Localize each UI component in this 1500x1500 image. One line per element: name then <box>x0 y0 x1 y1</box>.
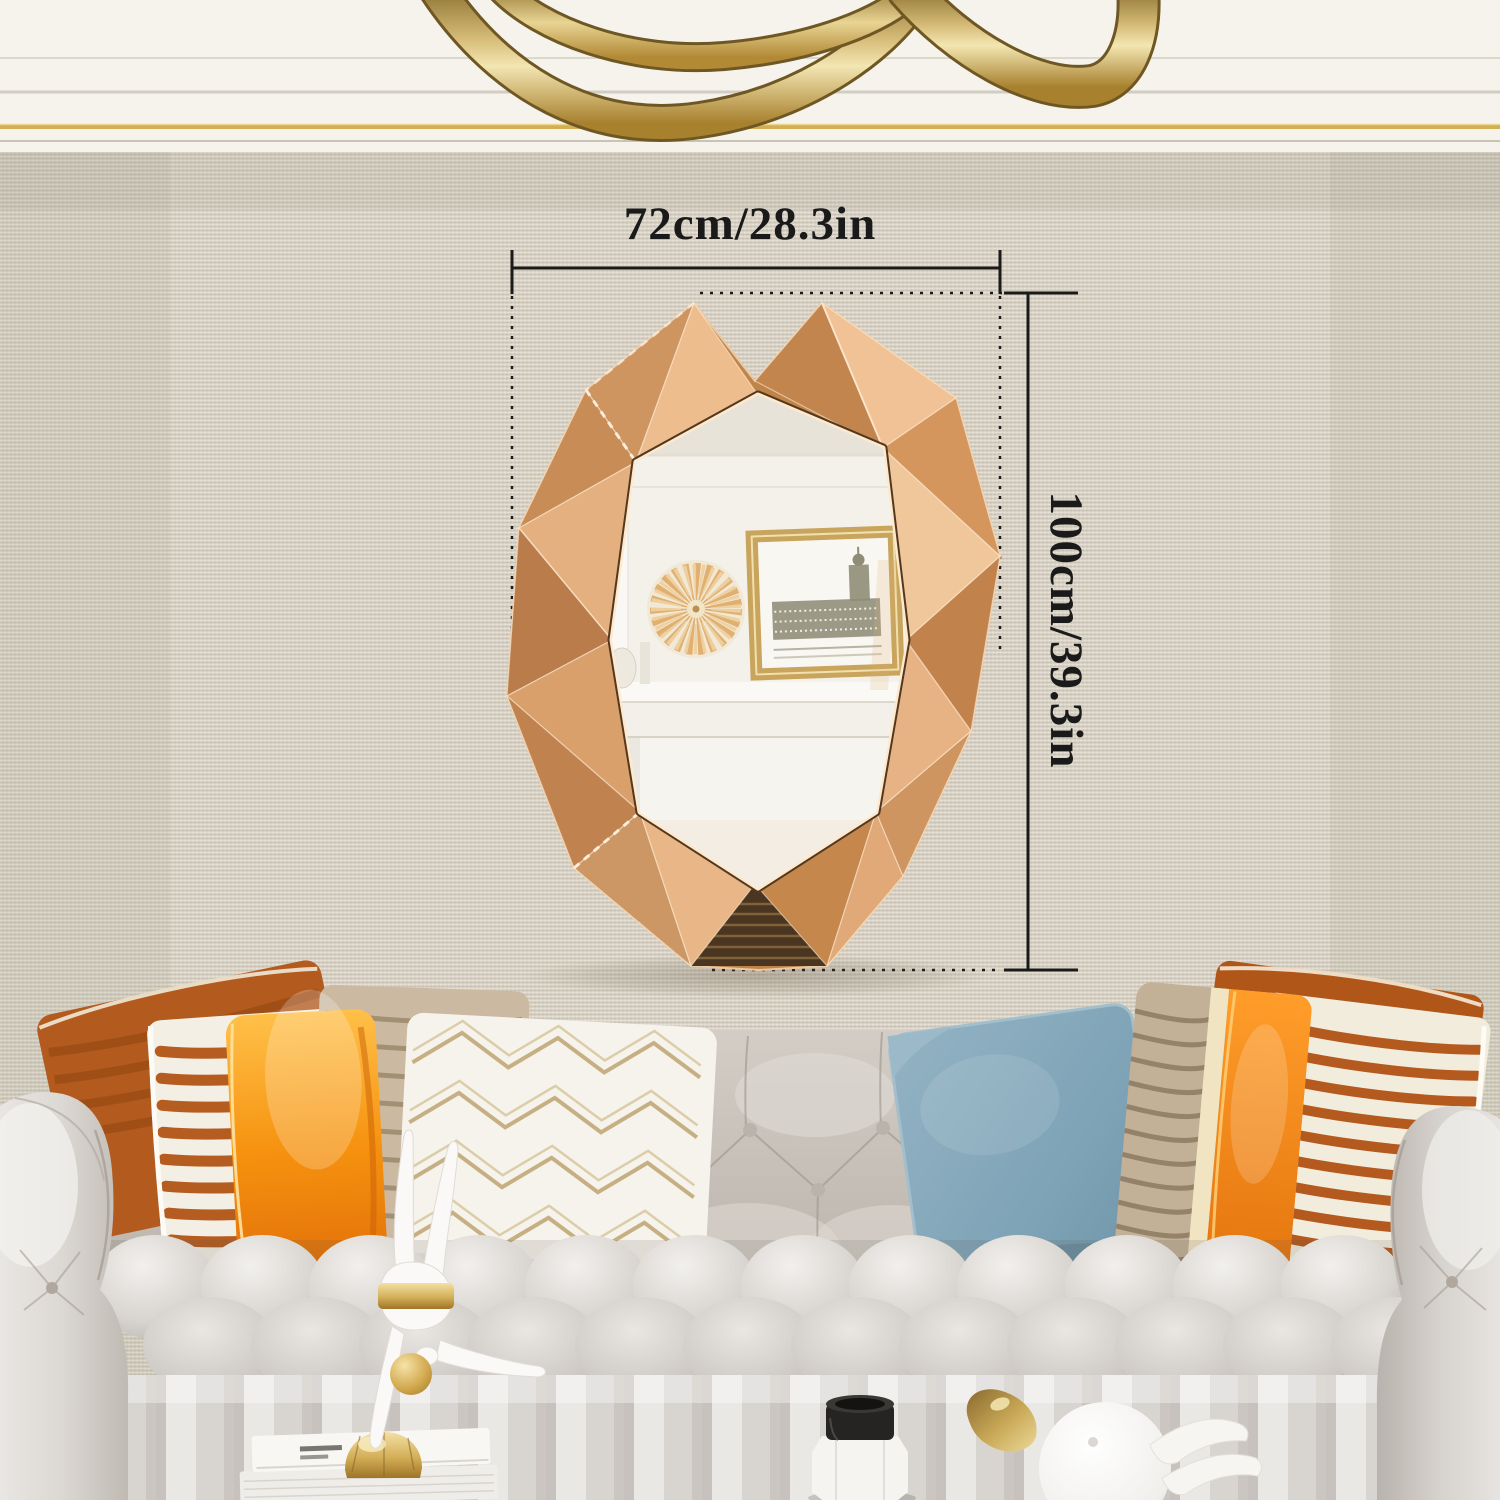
sofa-seat-tufted-edge <box>93 1235 1463 1393</box>
product-photo-living-room: 72cm/28.3in 100cm/39.3in <box>0 0 1500 1500</box>
reflected-candlestick <box>640 642 650 684</box>
jar-body <box>812 1436 908 1500</box>
chesterfield-sofa <box>0 957 1500 1500</box>
ceiling-molding-band <box>0 0 1500 152</box>
reflected-sunburst-decor <box>647 560 745 658</box>
molding-band <box>0 0 1500 152</box>
figurine-gold-shorts <box>378 1283 454 1309</box>
figurine-gold-head <box>390 1353 432 1395</box>
height-dimension-label: 100cm/39.3in <box>1036 370 1094 890</box>
width-dimension-label: 72cm/28.3in <box>500 196 1000 252</box>
